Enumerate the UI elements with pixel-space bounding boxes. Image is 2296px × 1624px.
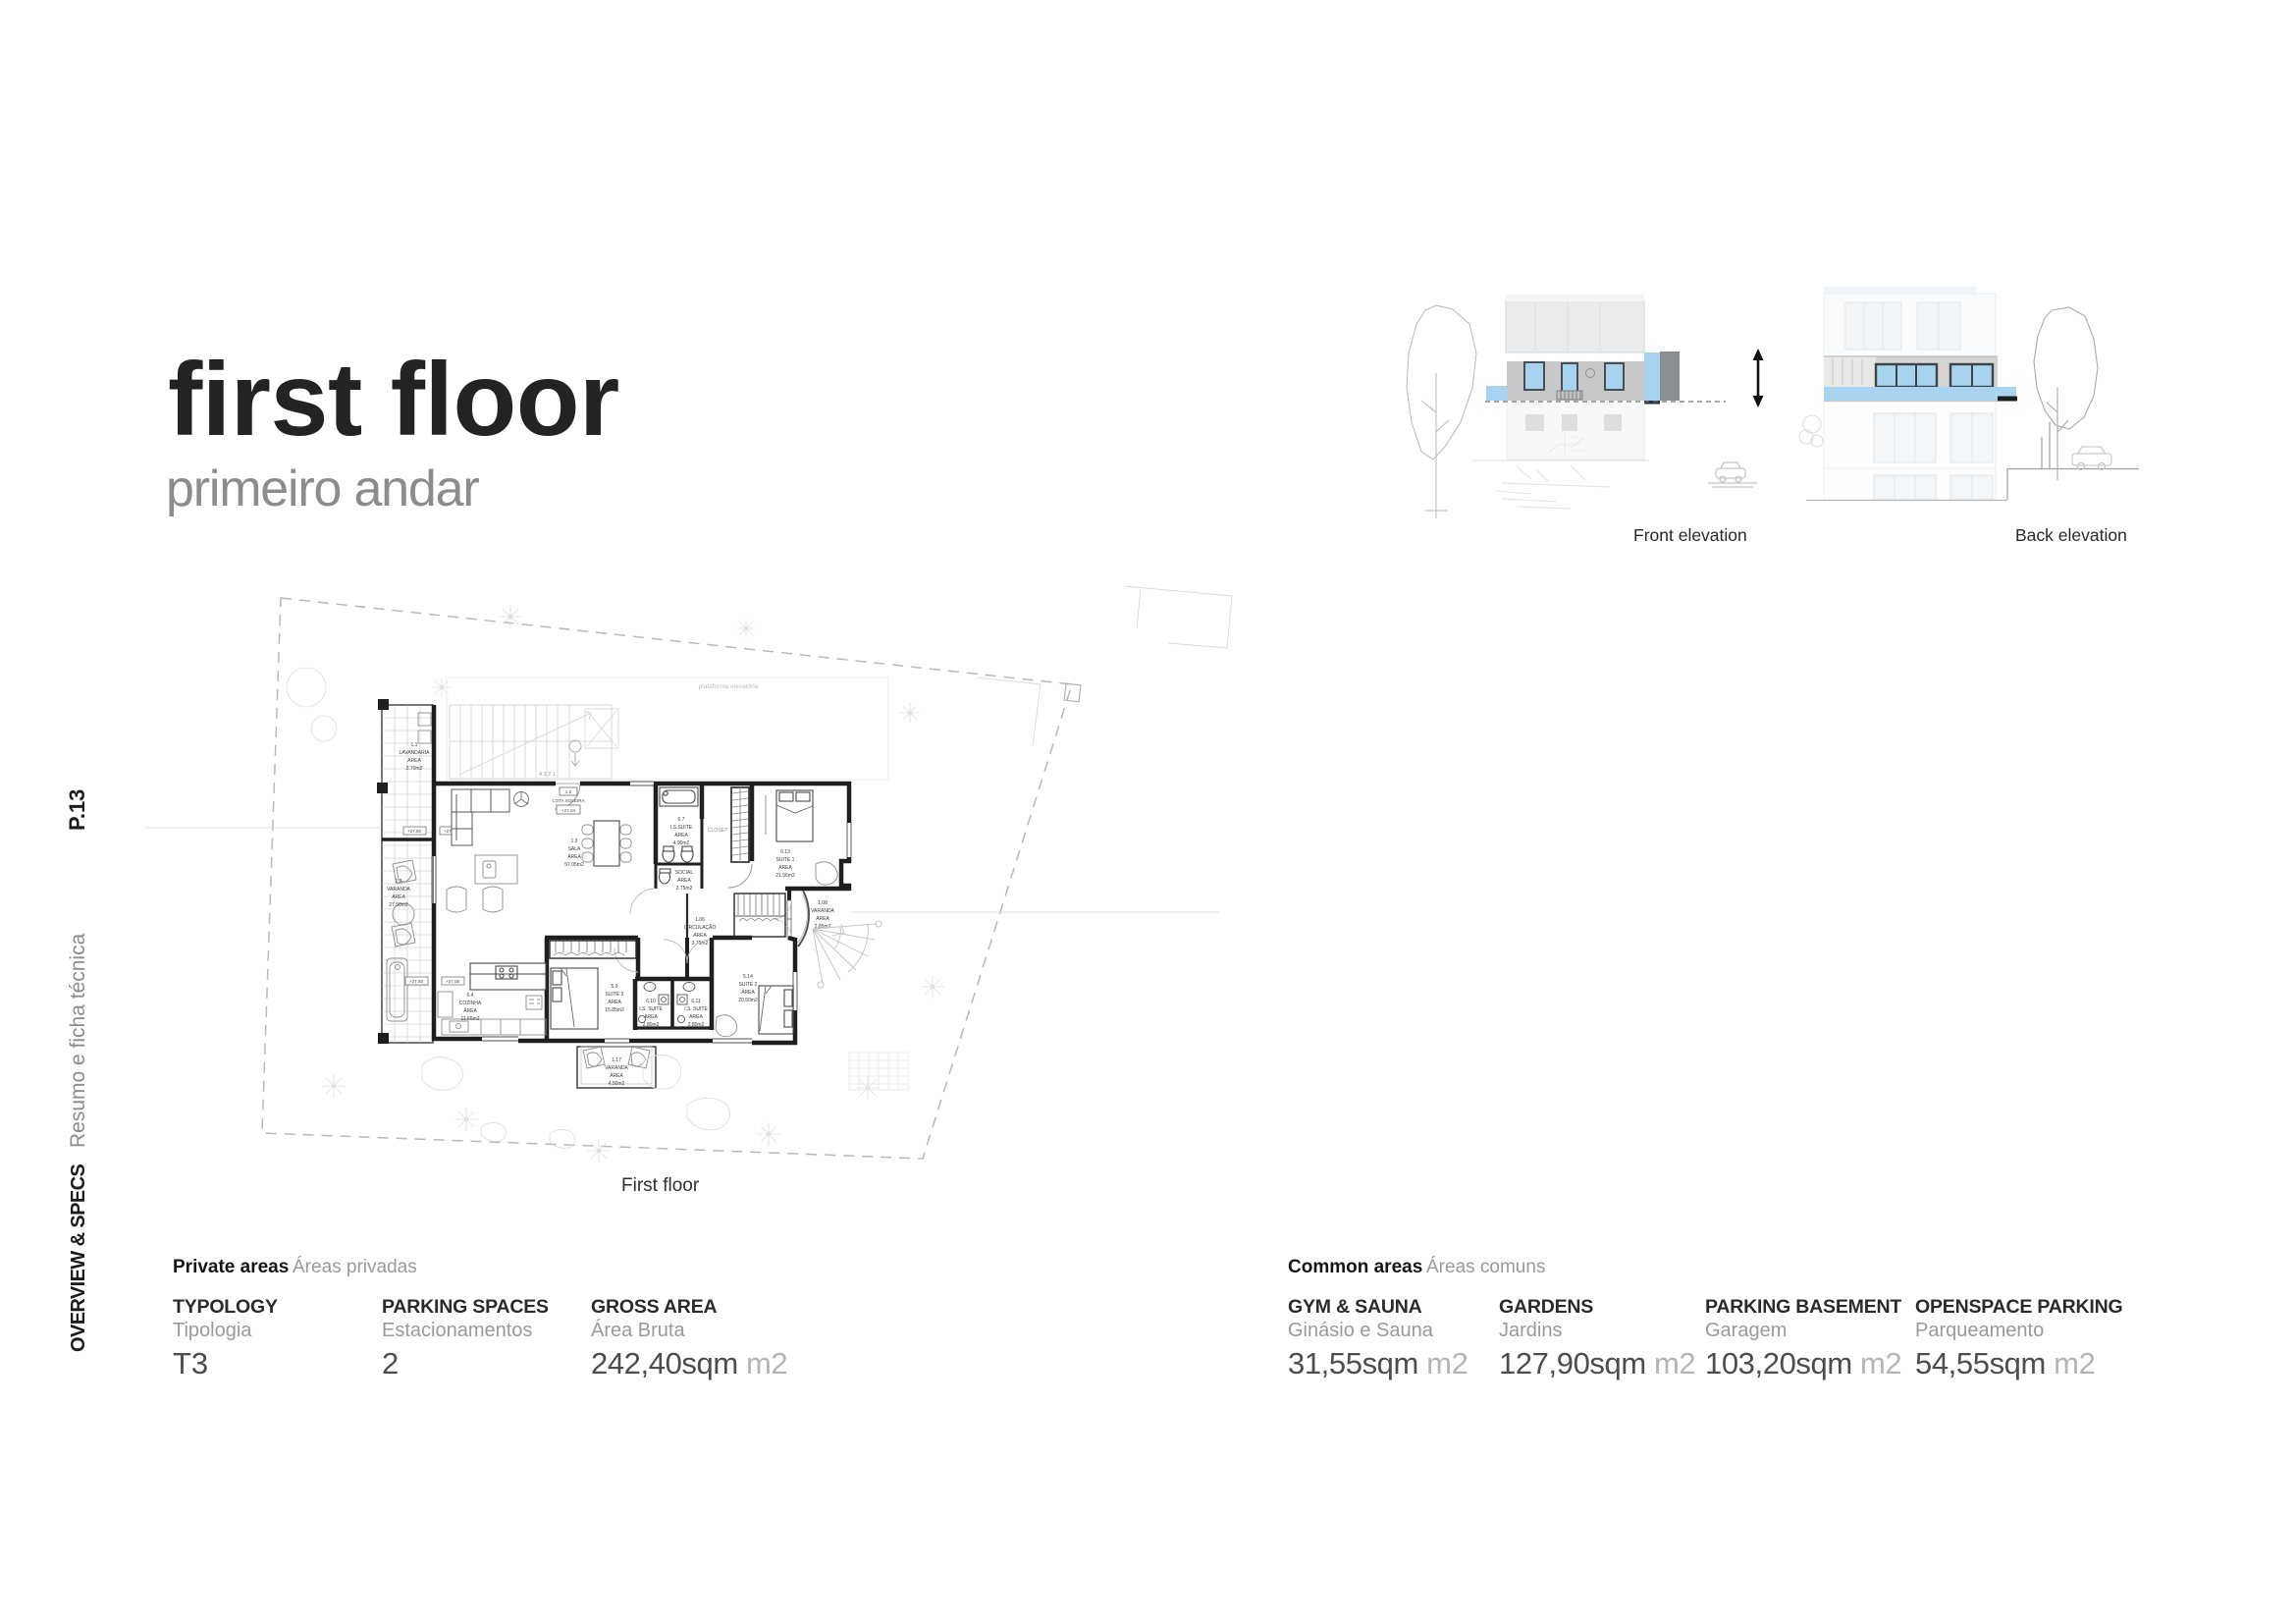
svg-text:TYPOLOGY: TYPOLOGY xyxy=(173,1296,278,1318)
svg-text:+27.06: +27.06 xyxy=(446,979,460,984)
svg-text:2: 2 xyxy=(382,1346,399,1380)
svg-text:1.2: 1.2 xyxy=(396,879,402,885)
svg-text:Resumo e ficha técnica: Resumo e ficha técnica xyxy=(67,933,89,1148)
svg-text:First floor: First floor xyxy=(621,1175,700,1196)
svg-text:Common areas: Common areas xyxy=(1288,1257,1422,1277)
svg-text:20.50m2: 20.50m2 xyxy=(738,998,758,1003)
svg-text:+27.60: +27.60 xyxy=(407,829,422,834)
svg-text:ÁREA: ÁREA xyxy=(610,1072,623,1079)
svg-text:CIRCULAÇÃO: CIRCULAÇÃO xyxy=(684,924,717,931)
svg-text:SOCIAL: SOCIAL xyxy=(675,870,694,876)
svg-text:ÁREA: ÁREA xyxy=(778,864,792,871)
svg-text:OVERVIEW & SPECS: OVERVIEW & SPECS xyxy=(68,1164,89,1352)
svg-text:Parqueamento: Parqueamento xyxy=(1915,1320,2044,1341)
svg-text:2.70m2: 2.70m2 xyxy=(406,766,423,772)
svg-text:ÁREA: ÁREA xyxy=(608,999,621,1005)
svg-text:Estacionamentos: Estacionamentos xyxy=(382,1320,532,1341)
svg-text:I.S. SUITE: I.S. SUITE xyxy=(639,1006,663,1012)
svg-text:Área Bruta: Área Bruta xyxy=(591,1319,685,1341)
svg-text:2.75m2: 2.75m2 xyxy=(676,886,693,892)
svg-text:VARANDA: VARANDA xyxy=(387,887,410,893)
svg-text:GYM & SAUNA: GYM & SAUNA xyxy=(1288,1296,1422,1318)
svg-text:Private areas: Private areas xyxy=(173,1257,289,1277)
svg-text:ÁREA: ÁREA xyxy=(392,893,405,900)
svg-text:ÁREA: ÁREA xyxy=(693,932,707,939)
svg-text:127,90sqm m2: 127,90sqm m2 xyxy=(1499,1346,1695,1380)
svg-text:ÁREA: ÁREA xyxy=(741,989,755,996)
svg-text:primeiro andar: primeiro andar xyxy=(166,460,479,517)
svg-text:ÁREA: ÁREA xyxy=(816,915,829,922)
svg-text:Jardins: Jardins xyxy=(1499,1320,1562,1341)
svg-text:plataforma elevatória: plataforma elevatória xyxy=(699,683,759,690)
svg-text:15.85m2: 15.85m2 xyxy=(605,1007,624,1013)
svg-text:+27.04: +27.04 xyxy=(561,808,576,813)
svg-text:103,20sqm m2: 103,20sqm m2 xyxy=(1705,1346,1901,1380)
svg-text:1.5: 1.5 xyxy=(565,789,572,794)
svg-text:3.75m2: 3.75m2 xyxy=(692,941,709,947)
svg-text:VARANDA: VARANDA xyxy=(605,1065,628,1071)
svg-text:T3: T3 xyxy=(173,1346,208,1380)
svg-text:OPENSPACE PARKING: OPENSPACE PARKING xyxy=(1915,1296,2123,1318)
svg-text:6.7: 6.7 xyxy=(678,817,685,823)
svg-text:ÁREA: ÁREA xyxy=(677,877,691,884)
svg-text:LAVANDARIA: LAVANDARIA xyxy=(400,750,431,756)
svg-text:COTA SOLEIRA: COTA SOLEIRA xyxy=(552,798,585,803)
svg-text:4.50m2: 4.50m2 xyxy=(609,1081,625,1087)
svg-text:4 3 2 1: 4 3 2 1 xyxy=(539,772,556,778)
svg-text:SUITE 1: SUITE 1 xyxy=(776,857,795,863)
svg-text:2.80m2: 2.80m2 xyxy=(688,1022,705,1028)
svg-text:5.14: 5.14 xyxy=(743,974,753,980)
svg-text:PARKING BASEMENT: PARKING BASEMENT xyxy=(1705,1296,1901,1318)
svg-text:Áreas privadas: Áreas privadas xyxy=(293,1257,417,1277)
svg-text:I.S.SUITE: I.S.SUITE xyxy=(670,825,693,831)
svg-text:ÁREA: ÁREA xyxy=(689,1013,703,1020)
svg-text:CLOSET: CLOSET xyxy=(708,828,729,834)
svg-text:6.10: 6.10 xyxy=(646,999,656,1004)
svg-text:Ginásio e Sauna: Ginásio e Sauna xyxy=(1288,1320,1434,1341)
svg-text:2.80m2: 2.80m2 xyxy=(643,1022,660,1028)
svg-text:SUITE 2: SUITE 2 xyxy=(739,982,758,988)
svg-text:first floor: first floor xyxy=(168,342,619,458)
svg-text:1.3: 1.3 xyxy=(571,839,578,844)
svg-text:6.13: 6.13 xyxy=(780,849,790,855)
svg-text:27.50m2: 27.50m2 xyxy=(389,902,408,908)
svg-text:4.90m2: 4.90m2 xyxy=(673,840,690,846)
svg-text:GROSS AREA: GROSS AREA xyxy=(591,1296,717,1318)
svg-text:6.4: 6.4 xyxy=(467,993,474,999)
svg-text:ÁREA: ÁREA xyxy=(463,1007,477,1014)
svg-text:VARANDA: VARANDA xyxy=(811,908,834,914)
svg-text:Áreas comuns: Áreas comuns xyxy=(1426,1257,1545,1277)
svg-text:1.1: 1.1 xyxy=(411,742,418,748)
svg-text:COZINHA: COZINHA xyxy=(459,1001,482,1006)
svg-text:ÁREA: ÁREA xyxy=(644,1013,658,1020)
svg-text:54,55sqm m2: 54,55sqm m2 xyxy=(1915,1346,2095,1380)
svg-text:ÁREA: ÁREA xyxy=(674,832,688,839)
svg-text:1.08: 1.08 xyxy=(818,900,828,906)
svg-text:SALA: SALA xyxy=(568,846,581,852)
svg-text:11.65m2: 11.65m2 xyxy=(460,1016,479,1022)
svg-text:GARDENS: GARDENS xyxy=(1499,1296,1593,1318)
svg-text:31,55sqm m2: 31,55sqm m2 xyxy=(1288,1346,1468,1380)
svg-text:6.11: 6.11 xyxy=(691,999,701,1004)
svg-text:Garagem: Garagem xyxy=(1705,1320,1787,1341)
svg-text:+27.60: +27.60 xyxy=(409,979,424,984)
svg-text:Tipologia: Tipologia xyxy=(173,1320,252,1341)
svg-text:ÁREA: ÁREA xyxy=(407,757,421,764)
svg-text:Back elevation: Back elevation xyxy=(2015,525,2127,545)
svg-text:57.05m2: 57.05m2 xyxy=(564,862,584,868)
svg-text:1.06: 1.06 xyxy=(695,917,705,923)
svg-text:SUITE 3: SUITE 3 xyxy=(606,992,624,998)
svg-text:21.56m2: 21.56m2 xyxy=(775,873,795,879)
svg-text:5.9: 5.9 xyxy=(612,984,618,990)
svg-text:I.S. SUITE: I.S. SUITE xyxy=(684,1006,708,1012)
svg-text:ÁREA: ÁREA xyxy=(567,853,581,860)
svg-text:1.17: 1.17 xyxy=(612,1057,621,1063)
svg-text:Front elevation: Front elevation xyxy=(1633,525,1747,545)
svg-text:PARKING SPACES: PARKING SPACES xyxy=(382,1296,549,1318)
svg-text:242,40sqm m2: 242,40sqm m2 xyxy=(591,1346,787,1380)
svg-text:P.13: P.13 xyxy=(65,789,89,831)
